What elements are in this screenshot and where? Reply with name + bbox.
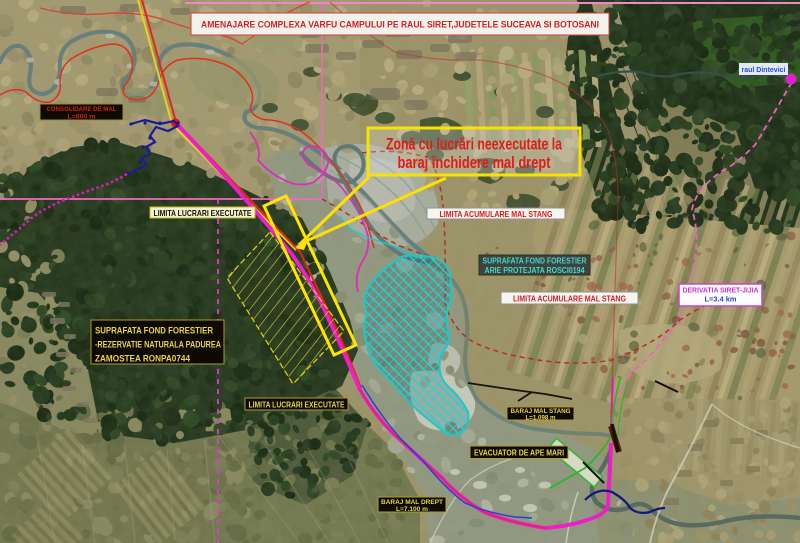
svg-text:CONSOLIDARE DE MAL: CONSOLIDARE DE MAL <box>47 106 117 113</box>
svg-text:LIMITA LUCRARI EXECUTATE: LIMITA LUCRARI EXECUTATE <box>249 399 345 409</box>
svg-text:LIMITA ACUMULARE MAL STANG: LIMITA ACUMULARE MAL STANG <box>513 293 626 303</box>
svg-text:ARIE PROTEJATA ROSCI0194: ARIE PROTEJATA ROSCI0194 <box>485 266 585 275</box>
svg-text:Zonă cu lucrări neexecutate la: Zonă cu lucrări neexecutate la <box>386 135 562 154</box>
svg-text:ZAMOSTEA RONPA0744: ZAMOSTEA RONPA0744 <box>95 354 190 364</box>
svg-text:DERIVATIA SIRET-JIJIA: DERIVATIA SIRET-JIJIA <box>683 288 759 295</box>
svg-text:L=3.4 km: L=3.4 km <box>705 297 737 304</box>
svg-text:LIMITA ACUMULARE MAL STANG: LIMITA ACUMULARE MAL STANG <box>440 209 553 219</box>
svg-text:L=7.100 m: L=7.100 m <box>396 506 428 513</box>
svg-text:L=800 m: L=800 m <box>68 113 96 120</box>
svg-text:raul Dintevici: raul Dintevici <box>742 65 786 74</box>
svg-text:baraj închidere mal drept: baraj închidere mal drept <box>398 153 551 172</box>
svg-text:BARAJ MAL DREPT: BARAJ MAL DREPT <box>381 499 443 506</box>
svg-text:-REZERVATIE NATURALA PADUREA: -REZERVATIE NATURALA PADUREA <box>95 340 221 350</box>
svg-text:LIMITA LUCRARI EXECUTATE: LIMITA LUCRARI EXECUTATE <box>154 208 252 218</box>
svg-text:EVACUATOR DE APE MARI: EVACUATOR DE APE MARI <box>474 448 564 458</box>
svg-text:SUPRAFATA FOND FORESTIER: SUPRAFATA FOND FORESTIER <box>95 326 213 336</box>
svg-text:L=1.098 m: L=1.098 m <box>526 415 556 422</box>
svg-text:SUPRAFATA FOND FORESTIER: SUPRAFATA FOND FORESTIER <box>483 256 587 265</box>
svg-text:AMENAJARE COMPLEXA VARFU CAMPU: AMENAJARE COMPLEXA VARFU CAMPULUI PE RAU… <box>201 20 599 31</box>
